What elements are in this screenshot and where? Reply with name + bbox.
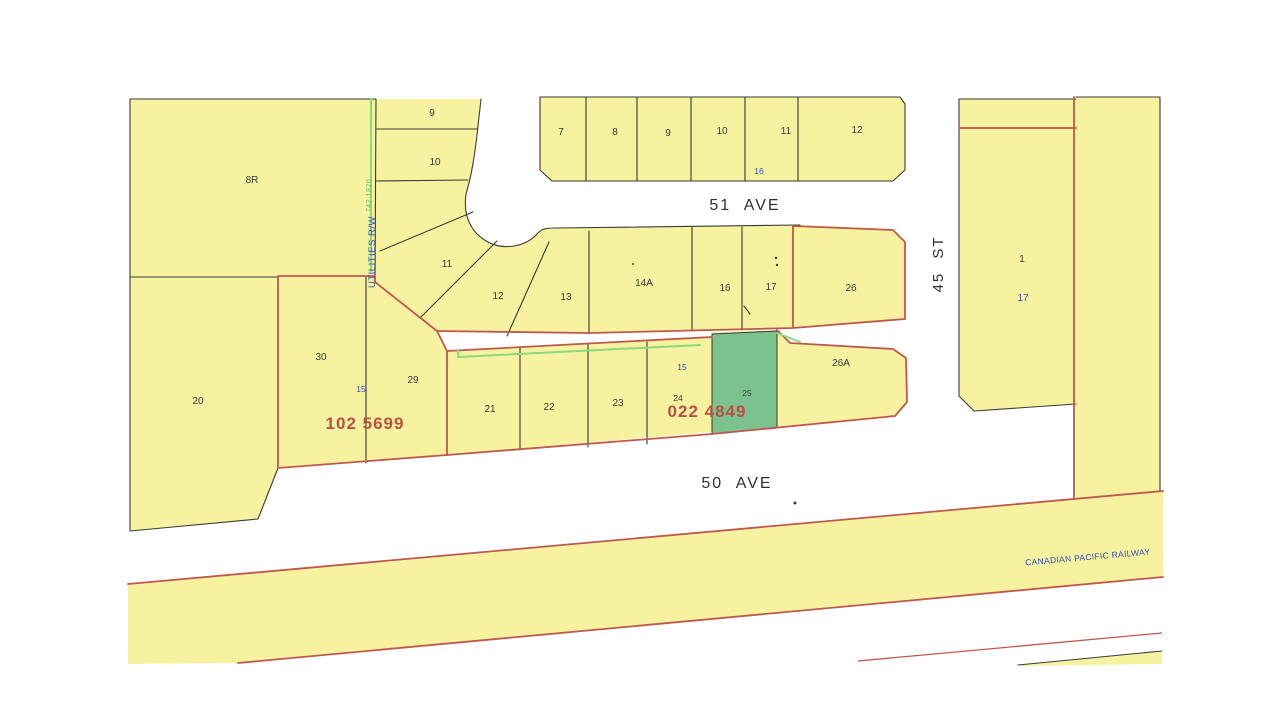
lot-label-8r: 8R <box>246 175 259 186</box>
lot-label-23: 23 <box>612 398 624 409</box>
lot-8r-shape <box>130 99 376 277</box>
lot-label-m14a: 14A <box>635 278 653 289</box>
parcel-fills <box>128 97 1163 666</box>
lot-label-w10: 10 <box>429 157 441 168</box>
lot-label-w9: 9 <box>429 108 435 119</box>
utilities-rw-label: UTILITIES R/W <box>367 216 378 288</box>
street-label-50-ave: 50 AVE <box>701 475 772 492</box>
lot-label-m16: 16 <box>719 283 731 294</box>
lot-label-m17: 17 <box>765 282 777 293</box>
lot-label-t12: 12 <box>851 125 863 136</box>
lot-label-m13: 13 <box>560 292 572 303</box>
lot-label-29: 29 <box>407 375 419 386</box>
railway-band-shape <box>128 491 1163 664</box>
cadastral-map: 8R 9 10 7 8 9 10 11 12 16 11 12 13 14A 1… <box>0 0 1280 726</box>
top-row-block-shape <box>540 97 905 181</box>
plat-map-page: 8R 9 10 7 8 9 10 11 12 16 11 12 13 14A 1… <box>0 0 1280 726</box>
lot-label-e17-blue: 17 <box>1017 293 1029 304</box>
lot-label-26a: 26A <box>832 358 850 369</box>
lot-label-t16-blue: 16 <box>754 166 764 176</box>
rw-width-label-left: 15 <box>356 384 366 394</box>
lot-label-t9: 9 <box>665 128 671 139</box>
rw-width-label-right: 15 <box>677 362 687 372</box>
lot-label-m26: 26 <box>845 283 857 294</box>
lot-label-t11: 11 <box>781 126 792 137</box>
lot-20-shape <box>130 277 278 531</box>
lot-label-m11: 11 <box>442 259 453 270</box>
street-label-51-ave: 51 AVE <box>709 197 780 214</box>
east-strip-shape <box>1076 97 1160 499</box>
lot-label-30: 30 <box>315 352 327 363</box>
lot-label-25: 25 <box>742 388 752 398</box>
utilities-plan-number-green: 742 1820 <box>366 179 373 212</box>
street-label-45-st: 45 ST <box>930 235 947 292</box>
plan-number-left: 102 5699 <box>326 414 405 433</box>
lot-label-m12: 12 <box>492 291 504 302</box>
lot-label-20: 20 <box>192 396 204 407</box>
east-lot1-shape <box>959 99 1076 411</box>
lot-label-t8: 8 <box>612 127 618 138</box>
lot-label-t7: 7 <box>558 127 564 138</box>
plan-number-right: 022 4849 <box>668 402 747 421</box>
lot-label-t10: 10 <box>716 126 728 137</box>
lot-label-21: 21 <box>484 404 496 415</box>
lot-label-22: 22 <box>543 402 555 413</box>
lot-label-e1: 1 <box>1019 254 1025 265</box>
